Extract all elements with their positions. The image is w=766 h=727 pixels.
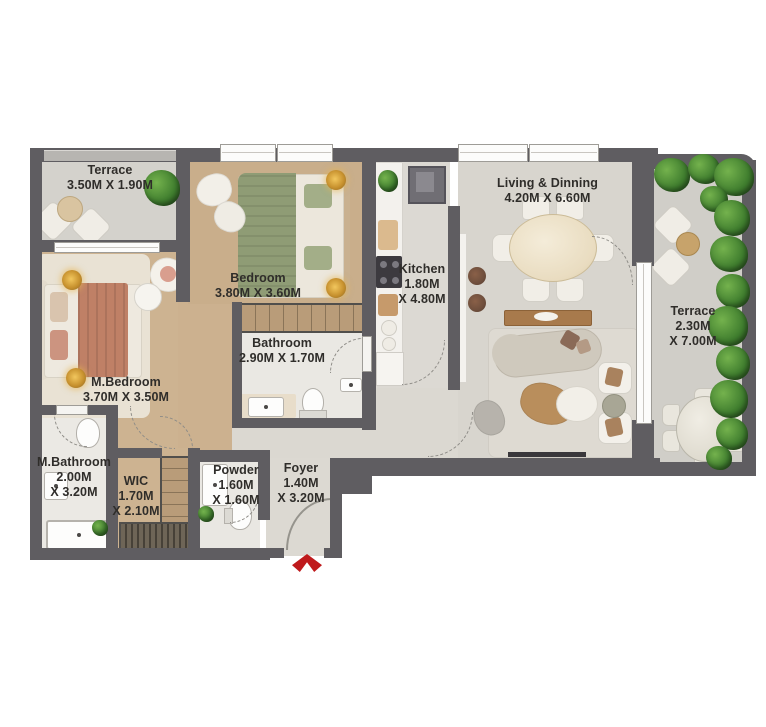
bathroom-shower-fixture bbox=[340, 378, 362, 392]
bedroom-kitchen-wall bbox=[362, 148, 376, 430]
m-bedroom-blanket bbox=[78, 283, 128, 377]
room-name: M.Bedroom bbox=[56, 375, 196, 390]
coffee-table-white bbox=[556, 386, 598, 422]
kitchen-herbs-icon bbox=[378, 170, 398, 192]
bedroom-window bbox=[220, 144, 276, 162]
m-bathroom-plant-icon bbox=[92, 520, 108, 536]
dining-table bbox=[509, 214, 597, 282]
terrace-r-plant-icon bbox=[716, 346, 750, 380]
corridor-bottom-corner bbox=[330, 458, 372, 494]
bedroom-closet bbox=[240, 303, 368, 333]
kitchen-cutting-board bbox=[378, 220, 398, 250]
bar-stool-icon bbox=[468, 267, 486, 285]
room-name: Bathroom bbox=[212, 336, 352, 351]
terrace-r-bottom-wall bbox=[648, 462, 756, 476]
room-label-bathroom: Bathroom 2.90M X 1.70M bbox=[212, 336, 352, 366]
room-dims: 1.60M bbox=[200, 478, 272, 493]
room-dims: X 3.20M bbox=[268, 491, 334, 506]
room-label-wic: WIC 1.70M X 2.10M bbox=[100, 474, 172, 519]
m-bathroom-door bbox=[56, 405, 88, 415]
corridor-bottom-wall bbox=[340, 458, 660, 476]
terrace-r-plant-icon bbox=[710, 380, 748, 418]
bottom-left-wall bbox=[30, 548, 270, 560]
room-dims: X 2.10M bbox=[100, 504, 172, 519]
living-window bbox=[458, 144, 528, 162]
room-label-powder: Powder 1.60M X 1.60M bbox=[200, 463, 272, 508]
room-dims: 2.30M bbox=[655, 319, 731, 334]
room-dims: 1.70M bbox=[100, 489, 172, 504]
bathroom-sink-icon bbox=[248, 397, 284, 417]
room-name: M.Bathroom bbox=[33, 455, 115, 470]
room-label-living: Living & Dinning 4.20M X 6.60M bbox=[470, 176, 625, 206]
room-label-bedroom: Bedroom 3.80M X 3.60M bbox=[188, 271, 328, 301]
m-bedroom-pillow bbox=[50, 330, 68, 360]
bedroom-lamp-icon bbox=[326, 170, 346, 190]
living-terrace-window bbox=[636, 262, 652, 424]
terrace-tl-table-icon bbox=[57, 196, 83, 222]
terrace-r-plant-icon bbox=[706, 446, 732, 470]
kitchen-cabinet bbox=[376, 352, 404, 386]
room-name: Terrace bbox=[40, 163, 180, 178]
dining-chair bbox=[556, 278, 584, 302]
side-table-stone bbox=[602, 394, 626, 418]
bedroom-lamp-icon bbox=[326, 278, 346, 298]
m-bedroom-side-table bbox=[134, 283, 162, 311]
terrace-tl-railing bbox=[44, 150, 176, 161]
console-decor bbox=[534, 312, 558, 321]
terrace-r-plant-icon bbox=[710, 236, 748, 272]
tv-icon bbox=[508, 452, 586, 457]
room-name: Living & Dinning bbox=[470, 176, 625, 191]
m-bedroom-pillow bbox=[50, 292, 68, 322]
bar-stool-icon bbox=[468, 241, 486, 259]
kitchen-plate bbox=[381, 320, 397, 336]
terrace-r-plant-icon bbox=[714, 200, 750, 236]
room-dims: 3.50M X 1.90M bbox=[40, 178, 180, 193]
terrace-r-table-icon bbox=[676, 232, 700, 256]
room-dims: X 7.00M bbox=[655, 334, 731, 349]
living-terrace-stub-top bbox=[632, 162, 654, 266]
room-label-kitchen: Kitchen 1.80M X 4.80M bbox=[384, 262, 460, 307]
room-dims: 3.80M X 3.60M bbox=[188, 286, 328, 301]
room-label-m-bedroom: M.Bedroom 3.70M X 3.50M bbox=[56, 375, 196, 405]
foyer-bottom-stub-left bbox=[266, 548, 284, 558]
bar-stool-icon bbox=[468, 294, 486, 312]
room-dims: 2.90M X 1.70M bbox=[212, 351, 352, 366]
room-label-terrace-tl: Terrace 3.50M X 1.90M bbox=[40, 163, 180, 193]
room-name: WIC bbox=[100, 474, 172, 489]
sofa-chaise bbox=[492, 334, 530, 372]
bedroom-pillow bbox=[304, 184, 332, 208]
m-bedroom-armchair-cushion bbox=[160, 266, 176, 282]
wic-right-wall bbox=[188, 448, 200, 548]
room-dims: 1.40M bbox=[268, 476, 334, 491]
floor-plan: Terrace 3.50M X 1.90M Bedroom 3.80M X 3.… bbox=[0, 0, 766, 727]
bedroom-window bbox=[277, 144, 333, 162]
bedroom-pillow bbox=[304, 246, 332, 270]
room-name: Foyer bbox=[268, 461, 334, 476]
room-label-terrace-r: Terrace 2.30M X 7.00M bbox=[655, 304, 731, 349]
living-window bbox=[529, 144, 599, 162]
room-name: Terrace bbox=[655, 304, 731, 319]
terrace-r-plant-icon bbox=[654, 158, 690, 192]
powder-plant-icon bbox=[198, 506, 214, 522]
terrace-r-plant-icon bbox=[716, 274, 750, 308]
m-bedroom-terrace-window bbox=[54, 242, 160, 253]
entrance-arrow-icon bbox=[292, 554, 322, 572]
kitchen-fridge-panel bbox=[416, 172, 434, 192]
bathroom-door bbox=[362, 336, 372, 372]
living-terrace-stub-bottom bbox=[632, 420, 654, 476]
room-name: Kitchen bbox=[384, 262, 460, 277]
room-name: Powder bbox=[200, 463, 272, 478]
living-armchair-cushion bbox=[604, 417, 623, 438]
room-dims: 3.70M X 3.50M bbox=[56, 390, 196, 405]
room-label-foyer: Foyer 1.40M X 3.20M bbox=[268, 461, 334, 506]
room-name: Bedroom bbox=[188, 271, 328, 286]
m-bedroom-lamp-icon bbox=[62, 270, 82, 290]
bathroom-bottom-wall bbox=[232, 418, 376, 428]
wic-top-wall bbox=[112, 448, 162, 458]
room-dims: X 1.60M bbox=[200, 493, 272, 508]
room-dims: X 4.80M bbox=[384, 292, 460, 307]
room-dims: 1.80M bbox=[384, 277, 460, 292]
kitchen-plate bbox=[382, 337, 396, 351]
room-dims: 4.20M X 6.60M bbox=[470, 191, 625, 206]
